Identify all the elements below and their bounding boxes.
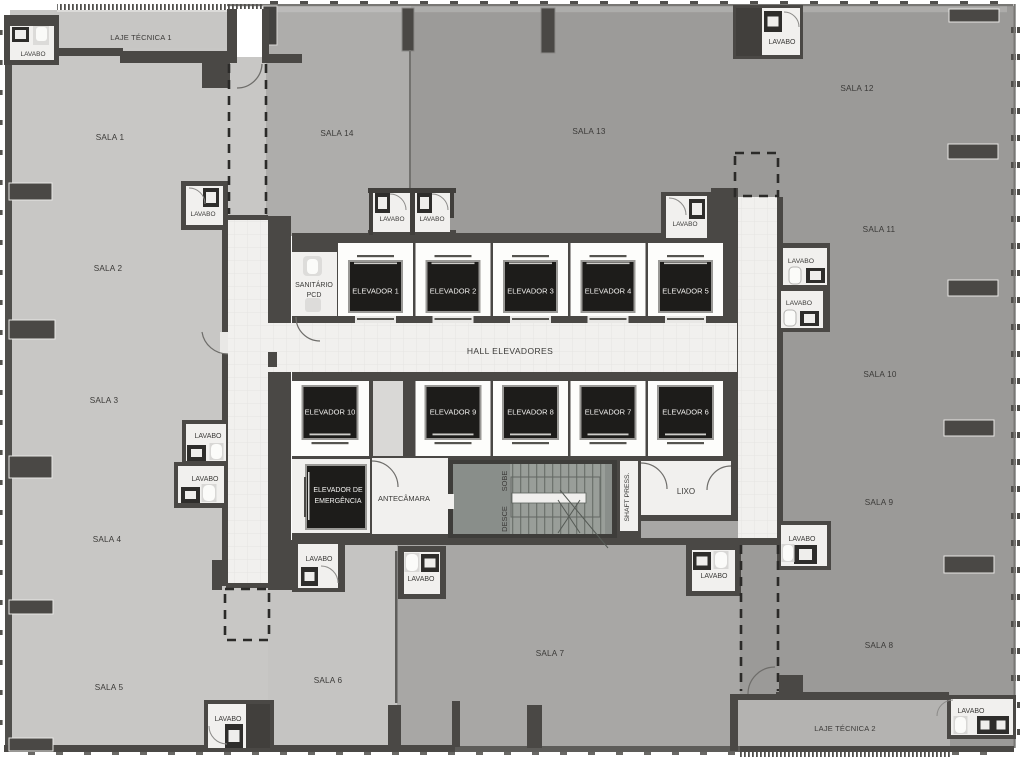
svg-text:SALA 11: SALA 11 (863, 225, 896, 234)
svg-text:ELEVADOR 10: ELEVADOR 10 (305, 408, 356, 417)
svg-text:ELEVADOR 4: ELEVADOR 4 (585, 287, 632, 296)
svg-text:SHAFT PRESS.: SHAFT PRESS. (624, 472, 631, 521)
svg-text:SALA 9: SALA 9 (865, 498, 894, 507)
svg-text:LAVABO: LAVABO (379, 216, 404, 223)
svg-text:ANTECÂMARA: ANTECÂMARA (378, 494, 430, 503)
svg-text:ELEVADOR 1: ELEVADOR 1 (352, 287, 399, 296)
svg-text:LAVABO: LAVABO (190, 211, 215, 218)
svg-text:ELEVADOR 5: ELEVADOR 5 (662, 287, 709, 296)
svg-text:LAJE TÉCNICA 2: LAJE TÉCNICA 2 (814, 724, 875, 733)
svg-text:SALA 10: SALA 10 (863, 370, 897, 379)
svg-text:HALL ELEVADORES: HALL ELEVADORES (467, 346, 553, 356)
svg-text:LAVABO: LAVABO (672, 221, 697, 228)
svg-text:ELEVADOR 9: ELEVADOR 9 (430, 408, 477, 417)
svg-text:SALA 1: SALA 1 (96, 133, 125, 142)
svg-text:LAVABO: LAVABO (789, 536, 817, 543)
svg-text:SALA 5: SALA 5 (95, 683, 124, 692)
svg-text:SALA 12: SALA 12 (840, 84, 874, 93)
svg-text:EMERGÊNCIA: EMERGÊNCIA (314, 496, 361, 505)
svg-text:SALA 7: SALA 7 (536, 649, 565, 658)
svg-text:SALA 8: SALA 8 (865, 641, 894, 650)
svg-text:LAVABO: LAVABO (20, 51, 45, 58)
svg-text:ELEVADOR 8: ELEVADOR 8 (507, 408, 554, 417)
svg-text:LAVABO: LAVABO (215, 716, 243, 723)
svg-text:LAVABO: LAVABO (786, 300, 812, 307)
svg-text:SALA 4: SALA 4 (93, 535, 122, 544)
svg-text:ELEVADOR 3: ELEVADOR 3 (507, 287, 554, 296)
svg-text:DESCE: DESCE (500, 506, 509, 532)
svg-text:SALA 2: SALA 2 (94, 264, 123, 273)
svg-text:SOBE: SOBE (500, 471, 509, 492)
svg-text:ELEVADOR 6: ELEVADOR 6 (662, 408, 709, 417)
svg-text:SALA 6: SALA 6 (314, 676, 343, 685)
svg-text:LAVABO: LAVABO (788, 258, 814, 265)
svg-text:LAVABO: LAVABO (419, 216, 444, 223)
svg-text:LIXO: LIXO (677, 487, 695, 496)
svg-text:LAVABO: LAVABO (195, 433, 223, 440)
svg-text:SALA 3: SALA 3 (90, 396, 119, 405)
svg-text:PCD: PCD (307, 292, 322, 299)
svg-text:SALA 13: SALA 13 (572, 127, 606, 136)
svg-text:LAVABO: LAVABO (306, 556, 334, 563)
svg-text:ELEVADOR DE: ELEVADOR DE (313, 487, 363, 494)
svg-text:ELEVADOR 2: ELEVADOR 2 (430, 287, 477, 296)
svg-text:LAVABO: LAVABO (701, 573, 729, 580)
svg-text:SANITÁRIO: SANITÁRIO (295, 280, 333, 289)
svg-text:LAVABO: LAVABO (769, 39, 797, 46)
svg-text:SALA 14: SALA 14 (320, 129, 354, 138)
svg-text:LAVABO: LAVABO (408, 576, 436, 583)
svg-text:ELEVADOR 7: ELEVADOR 7 (585, 408, 632, 417)
svg-text:LAJE TÉCNICA 1: LAJE TÉCNICA 1 (110, 33, 171, 42)
svg-text:LAVABO: LAVABO (192, 476, 220, 483)
svg-text:LAVABO: LAVABO (958, 708, 986, 715)
